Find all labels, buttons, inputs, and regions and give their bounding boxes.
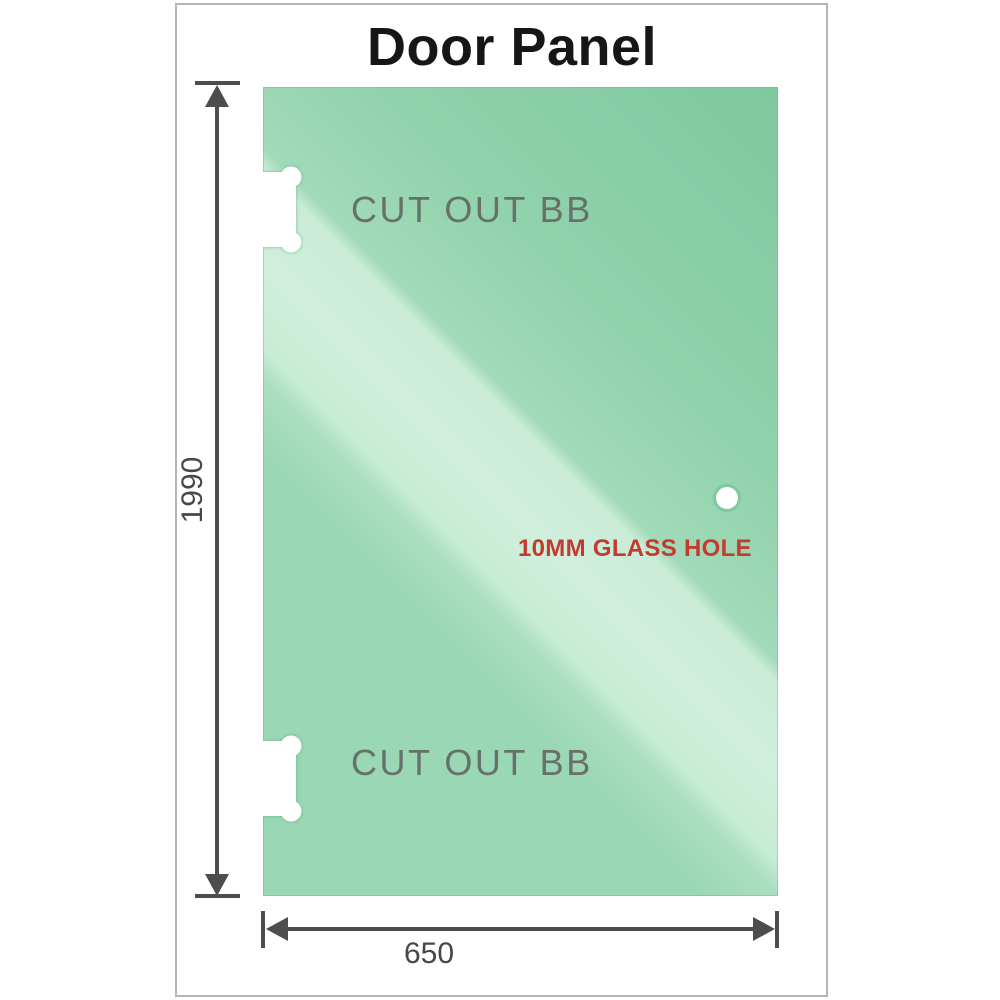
page-title: Door Panel — [367, 16, 657, 78]
arrow-right-icon — [753, 917, 775, 941]
height-dimension-line — [215, 105, 219, 876]
arrow-down-icon — [205, 874, 229, 896]
height-dimension-tick-bottom — [195, 894, 240, 898]
height-dimension-label: 1990 — [178, 457, 208, 524]
width-dimension-tick-right — [775, 911, 779, 948]
width-dimension-label: 650 — [404, 939, 454, 969]
cutout-top-label: CUT OUT BB — [351, 192, 593, 228]
hinge-cutout-bottom-icon — [263, 735, 305, 822]
width-dimension-line — [288, 927, 753, 931]
arrow-up-icon — [205, 85, 229, 107]
glass-hole-icon — [713, 484, 741, 512]
hinge-cutout-top-icon — [263, 166, 305, 253]
arrow-left-icon — [266, 917, 288, 941]
cutout-bottom-label: CUT OUT BB — [351, 745, 593, 781]
width-dimension-tick-left — [261, 911, 265, 948]
glass-hole-label: 10MM GLASS HOLE — [518, 537, 752, 561]
door-panel-diagram: Door Panel CUT OUT BB CUT OUT BB 10MM GL… — [0, 0, 1000, 1000]
glass-panel: CUT OUT BB CUT OUT BB 10MM GLASS HOLE — [263, 87, 778, 896]
